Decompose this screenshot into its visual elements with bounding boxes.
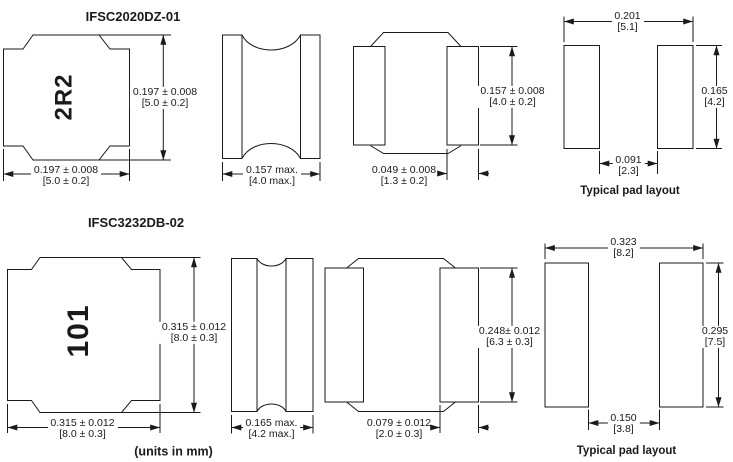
dimension-mm: [2.0 ± 0.3] [367, 429, 431, 440]
dimension-mm: [3.8] [610, 424, 636, 435]
dimension-mm: [8.0 ± 0.3] [162, 333, 226, 344]
part1-pad-layout-label: Typical pad layout [580, 185, 679, 197]
part2-marking-text: 101 [63, 304, 95, 357]
part2-pad-layout-drawing [545, 244, 724, 431]
part1-title: IFSC2020DZ-01 [86, 10, 181, 24]
dimension-mm: [8.0 ± 0.3] [50, 429, 114, 440]
dimension-mm: [5.0 ± 0.2] [133, 98, 197, 109]
part1-marking-text: 2R2 [51, 73, 76, 120]
part2-pad-height-dimension: 0.295 [7.5] [699, 325, 731, 347]
dimension-mm: [4.2 max.] [246, 429, 298, 440]
part1-pad-height-dimension: 0.165 [4.2] [698, 85, 730, 107]
dimension-mm: [5.1] [614, 22, 640, 33]
part2-side-width-dimension: 0.165 max. [4.2 max.] [243, 417, 301, 439]
dimension-mm: [1.3 ± 0.2] [372, 176, 436, 187]
part2-front-height-dimension: 0.248± 0.012 [6.3 ± 0.3] [476, 325, 543, 347]
dimension-mm: [8.2] [610, 248, 636, 259]
part1-side-view-drawing [223, 35, 321, 181]
part1-pad-span-dimension: 0.201 [5.1] [611, 11, 643, 33]
part2-terminal-width-dimension: 0.079 ± 0.012 [2.0 ± 0.3] [367, 417, 431, 439]
datasheet-dimension-drawing: IFSC2020DZ-01 2R2 0.197 ± 0.008 [5.0 ± 0… [0, 0, 733, 462]
part2-top-height-dimension: 0.315 ± 0.012 [8.0 ± 0.3] [159, 322, 229, 344]
technical-drawing-linework [0, 0, 733, 462]
dimension-mm: [4.2] [701, 97, 727, 108]
part1-top-height-dimension: 0.197 ± 0.008 [5.0 ± 0.2] [130, 87, 200, 109]
part1-terminal-width-dimension: 0.049 ± 0.008 [1.3 ± 0.2] [372, 165, 436, 187]
part2-pad-gap-dimension: 0.150 [3.8] [607, 412, 639, 434]
dimension-mm: [5.0 ± 0.2] [34, 176, 98, 187]
part1-front-height-dimension: 0.157 ± 0.008 [4.0 ± 0.2] [477, 85, 547, 107]
part2-side-view-drawing [232, 259, 314, 434]
part2-top-width-dimension: 0.315 ± 0.012 [8.0 ± 0.3] [47, 417, 117, 439]
units-note: (units in mm) [134, 445, 212, 458]
dimension-mm: [4.0 ± 0.2] [480, 97, 544, 108]
part1-pad-gap-dimension: 0.091 [2.3] [612, 155, 644, 177]
dimension-mm: [7.5] [702, 337, 728, 348]
dimension-mm: [2.3] [615, 166, 641, 177]
part2-pad-layout-label: Typical pad layout [577, 444, 676, 456]
part2-pad-span-dimension: 0.323 [8.2] [607, 236, 639, 258]
part1-side-width-dimension: 0.157 max. [4.0 max.] [243, 165, 301, 187]
part1-top-width-dimension: 0.197 ± 0.008 [5.0 ± 0.2] [31, 165, 101, 187]
dimension-mm: [6.3 ± 0.3] [479, 337, 540, 348]
part2-title: IFSC3232DB-02 [88, 216, 184, 230]
dimension-mm: [4.0 max.] [246, 176, 298, 187]
part2-top-view-drawing [8, 258, 201, 434]
